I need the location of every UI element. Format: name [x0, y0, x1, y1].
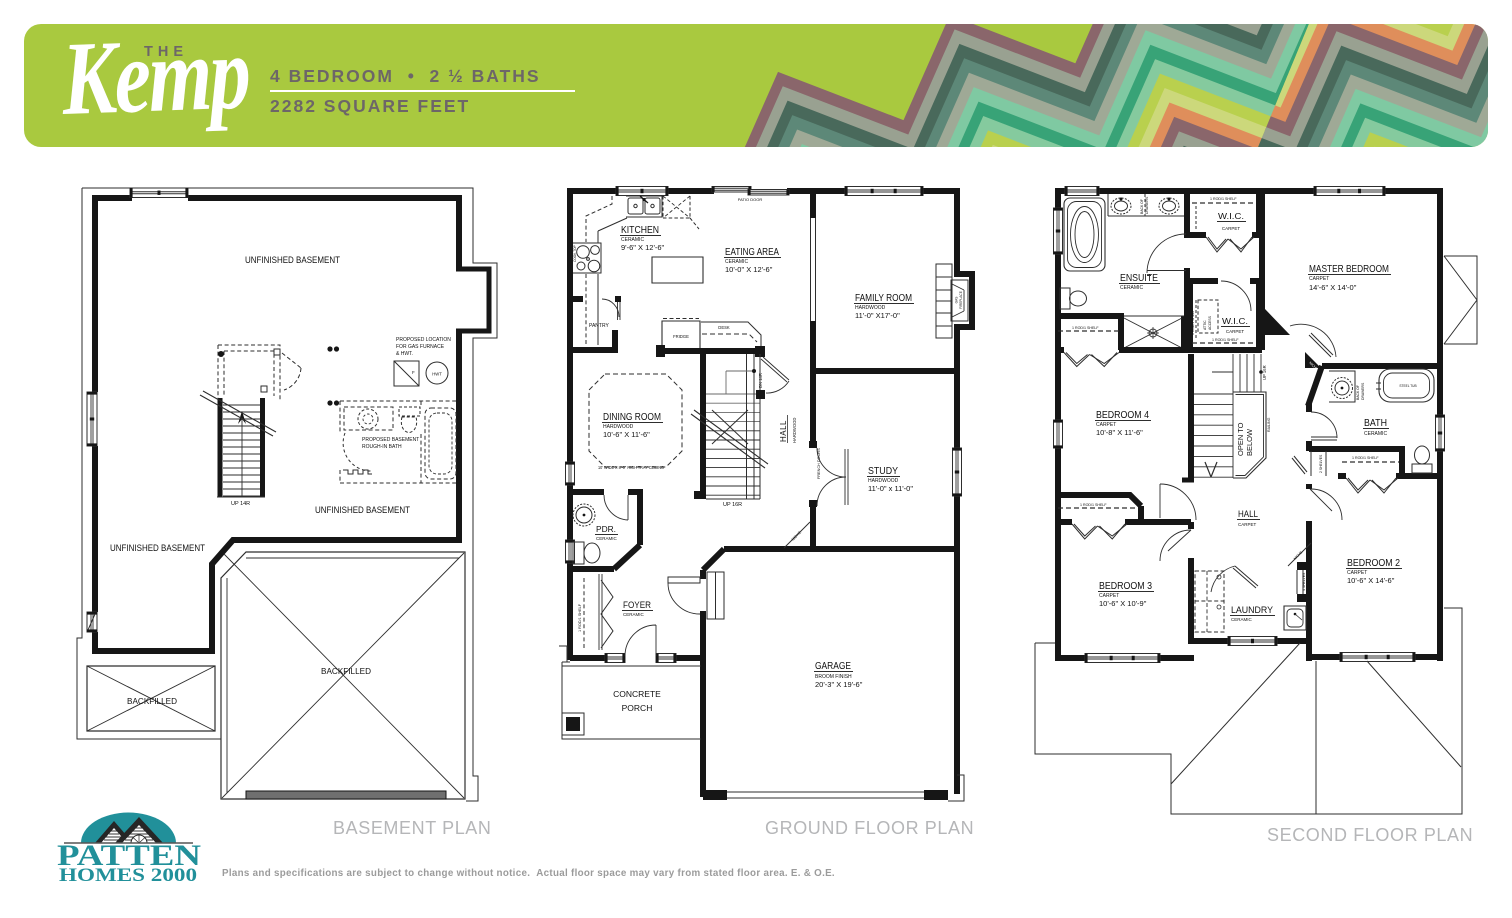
svg-text:1 ROD/1 SHELF: 1 ROD/1 SHELF — [1191, 310, 1195, 335]
svg-text:DRAWERS: DRAWERS — [1145, 196, 1149, 214]
svg-text:HOMES 2000: HOMES 2000 — [59, 865, 197, 886]
svg-text:10' WIDE X 8'-0" HIGH TRAY CEI: 10' WIDE X 8'-0" HIGH TRAY CEILING — [598, 465, 664, 470]
svg-text:9'-6" X 12'-6": 9'-6" X 12'-6" — [621, 243, 665, 252]
svg-text:1 ROD/1 SHELF: 1 ROD/1 SHELF — [1210, 197, 1237, 201]
svg-text:HARDWOOD: HARDWOOD — [792, 418, 797, 443]
svg-text:FIREPLACE: FIREPLACE — [959, 291, 963, 309]
svg-text:DESK: DESK — [718, 325, 730, 330]
svg-text:HALL: HALL — [1238, 509, 1258, 519]
svg-text:UNFINISHED BASEMENT: UNFINISHED BASEMENT — [245, 255, 340, 266]
svg-text:FAMILY ROOM: FAMILY ROOM — [855, 292, 912, 304]
svg-text:4 SHELVES: 4 SHELVES — [1302, 572, 1306, 591]
svg-text:RAILING: RAILING — [1267, 417, 1271, 432]
svg-text:CERAMIC: CERAMIC — [1120, 285, 1143, 291]
svg-text:LAUNDRY: LAUNDRY — [1231, 605, 1274, 616]
svg-text:10'-0" X 12'-6": 10'-0" X 12'-6" — [725, 265, 773, 274]
svg-text:CARPET: CARPET — [1226, 329, 1245, 334]
svg-text:COOK TOP: COOK TOP — [573, 245, 577, 262]
svg-text:PORCH: PORCH — [622, 703, 653, 713]
svg-text:CERAMIC: CERAMIC — [1364, 431, 1387, 437]
svg-text:PANTRY: PANTRY — [589, 323, 609, 329]
svg-text:UP 16R: UP 16R — [1262, 365, 1267, 380]
svg-text:10'-8" X 11'-6": 10'-8" X 11'-6" — [1096, 428, 1143, 437]
svg-text:10'-6" X 10'-9": 10'-6" X 10'-9" — [1099, 599, 1147, 608]
svg-text:FRENCH DOORS: FRENCH DOORS — [817, 448, 821, 479]
svg-text:DINING ROOM: DINING ROOM — [603, 411, 661, 423]
svg-text:FOR GAS FURNACE: FOR GAS FURNACE — [396, 344, 445, 350]
svg-text:F: F — [412, 370, 415, 375]
svg-text:GARAGE: GARAGE — [815, 661, 851, 672]
svg-text:PROPOSED BASEMENT: PROPOSED BASEMENT — [362, 437, 419, 443]
svg-text:ENSUITE: ENSUITE — [1120, 273, 1158, 284]
svg-text:PDR.: PDR. — [596, 525, 616, 534]
svg-text:CARPET: CARPET — [1238, 522, 1257, 527]
svg-text:BEDROOM 4: BEDROOM 4 — [1096, 409, 1149, 421]
svg-text:2 SHELVES: 2 SHELVES — [1319, 454, 1323, 473]
svg-text:FOYER: FOYER — [623, 600, 651, 610]
svg-text:W.I.C.: W.I.C. — [1222, 316, 1248, 326]
svg-text:1 ROD/1 SHELF: 1 ROD/1 SHELF — [578, 603, 582, 632]
svg-text:UNFINISHED BASEMENT: UNFINISHED BASEMENT — [110, 543, 205, 554]
svg-text:10'-6" X 14'-6": 10'-6" X 14'-6" — [1347, 576, 1395, 585]
svg-text:1 ROD/1 SHELF: 1 ROD/1 SHELF — [1080, 503, 1107, 507]
svg-text:BACKFILLED: BACKFILLED — [321, 666, 371, 676]
svg-text:11'-0" X17'-0": 11'-0" X17'-0" — [855, 311, 900, 320]
svg-text:14'-6" X 14'-0": 14'-6" X 14'-0" — [1309, 283, 1357, 292]
svg-text:DN 14R: DN 14R — [758, 373, 763, 388]
svg-text:CERAMIC: CERAMIC — [596, 536, 618, 541]
svg-text:UP 16R: UP 16R — [723, 502, 742, 508]
svg-text:BATH: BATH — [1364, 418, 1387, 429]
svg-text:ATTIC: ATTIC — [1203, 320, 1207, 330]
svg-text:BEDROOM 3: BEDROOM 3 — [1099, 580, 1152, 592]
svg-text:CARPET: CARPET — [1222, 226, 1241, 231]
svg-text:BELOW: BELOW — [1245, 428, 1254, 456]
svg-text:20'-3" X 19'-6": 20'-3" X 19'-6" — [815, 680, 863, 689]
svg-text:11'-0" x 11'-0": 11'-0" x 11'-0" — [868, 484, 913, 493]
svg-text:BACK OF: BACK OF — [1356, 385, 1360, 400]
svg-text:CARPET: CARPET — [1309, 276, 1329, 282]
svg-text:STEEL TUB: STEEL TUB — [1399, 384, 1416, 388]
svg-text:FRIDGE: FRIDGE — [673, 334, 689, 339]
svg-text:HWT: HWT — [432, 372, 442, 377]
svg-text:CERAMIC: CERAMIC — [1231, 617, 1253, 622]
svg-text:ACCESS: ACCESS — [1208, 315, 1212, 330]
svg-text:ROUGH-IN BATH: ROUGH-IN BATH — [362, 444, 402, 450]
svg-text:UNFINISHED BASEMENT: UNFINISHED BASEMENT — [315, 505, 410, 516]
svg-text:STUDY: STUDY — [868, 466, 898, 477]
svg-text:BEDROOM 2: BEDROOM 2 — [1347, 557, 1400, 569]
svg-text:CERAMIC: CERAMIC — [623, 612, 645, 617]
svg-text:EATING AREA: EATING AREA — [725, 246, 779, 258]
svg-text:PATIO DOOR: PATIO DOOR — [738, 197, 763, 202]
svg-text:& HWT.: & HWT. — [396, 351, 413, 357]
svg-text:KITCHEN: KITCHEN — [621, 225, 659, 236]
svg-text:10'-6" X 11'-6": 10'-6" X 11'-6" — [603, 430, 650, 439]
svg-text:CONCRETE: CONCRETE — [613, 689, 661, 699]
svg-text:GAS: GAS — [955, 297, 959, 304]
svg-text:1 ROD/1 SHELF: 1 ROD/1 SHELF — [1072, 326, 1099, 330]
svg-text:W.I.C.: W.I.C. — [1218, 211, 1244, 221]
svg-text:OPEN TO: OPEN TO — [1236, 422, 1245, 456]
svg-text:1 ROD/1 SHELF: 1 ROD/1 SHELF — [1212, 338, 1239, 342]
svg-text:DRAWERS: DRAWERS — [1361, 382, 1365, 400]
svg-text:1 ROD/1 SHELF: 1 ROD/1 SHELF — [1352, 456, 1379, 460]
svg-text:BACK OF: BACK OF — [1140, 199, 1144, 214]
svg-text:UP 14R: UP 14R — [231, 501, 250, 507]
svg-text:PROPOSED LOCATION: PROPOSED LOCATION — [396, 337, 451, 343]
svg-text:HALL: HALL — [779, 420, 788, 442]
svg-text:MASTER BEDROOM: MASTER BEDROOM — [1309, 263, 1389, 275]
svg-text:BACKFILLED: BACKFILLED — [127, 696, 177, 706]
